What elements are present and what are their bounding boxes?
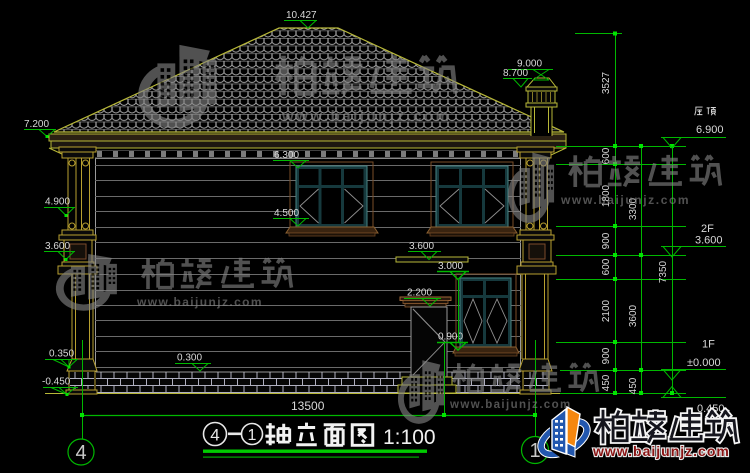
svg-text:900: 900 <box>601 232 612 249</box>
svg-text:2.200: 2.200 <box>407 288 432 299</box>
svg-text:6.900: 6.900 <box>696 124 724 136</box>
svg-text:900: 900 <box>601 347 612 364</box>
svg-text:3.000: 3.000 <box>438 261 463 272</box>
svg-text:6.300: 6.300 <box>274 150 299 161</box>
svg-text:4.900: 4.900 <box>45 197 70 208</box>
svg-text:2F: 2F <box>701 223 714 235</box>
svg-text:8.700: 8.700 <box>503 68 528 79</box>
svg-text:1: 1 <box>248 427 257 444</box>
svg-text:7.200: 7.200 <box>24 119 49 130</box>
svg-text:0.900: 0.900 <box>438 332 463 343</box>
svg-text:450: 450 <box>628 377 639 394</box>
svg-text:600: 600 <box>601 258 612 275</box>
svg-text:0.300: 0.300 <box>177 353 202 364</box>
svg-text:13500: 13500 <box>291 399 325 413</box>
svg-text:www.baijunjz.com: www.baijunjz.com <box>560 193 690 207</box>
svg-text:www.baijunjz.com: www.baijunjz.com <box>592 443 730 459</box>
svg-text:3600: 3600 <box>628 304 639 327</box>
svg-text:4: 4 <box>75 442 86 464</box>
svg-text:±0.000: ±0.000 <box>687 357 721 369</box>
svg-text:7350: 7350 <box>658 260 669 283</box>
svg-text:10.427: 10.427 <box>286 10 317 21</box>
svg-text:2100: 2100 <box>601 299 612 322</box>
svg-text:3.600: 3.600 <box>45 241 70 252</box>
svg-text:450: 450 <box>601 374 612 391</box>
svg-text:3.600: 3.600 <box>695 235 723 247</box>
svg-text:3.600: 3.600 <box>409 241 434 252</box>
svg-text:1F: 1F <box>702 339 715 351</box>
svg-text:www.baijunjz.com: www.baijunjz.com <box>449 399 572 411</box>
svg-text:-0.450: -0.450 <box>42 377 71 388</box>
svg-text:www.baijunjz.com: www.baijunjz.com <box>136 295 263 309</box>
svg-text:3527: 3527 <box>601 71 612 94</box>
svg-text:4: 4 <box>210 426 219 445</box>
svg-text:www.baijunjz.com: www.baijunjz.com <box>281 108 451 125</box>
svg-text:0.350: 0.350 <box>49 349 74 360</box>
svg-text:1:100: 1:100 <box>383 426 436 449</box>
svg-text:4.500: 4.500 <box>274 208 299 219</box>
